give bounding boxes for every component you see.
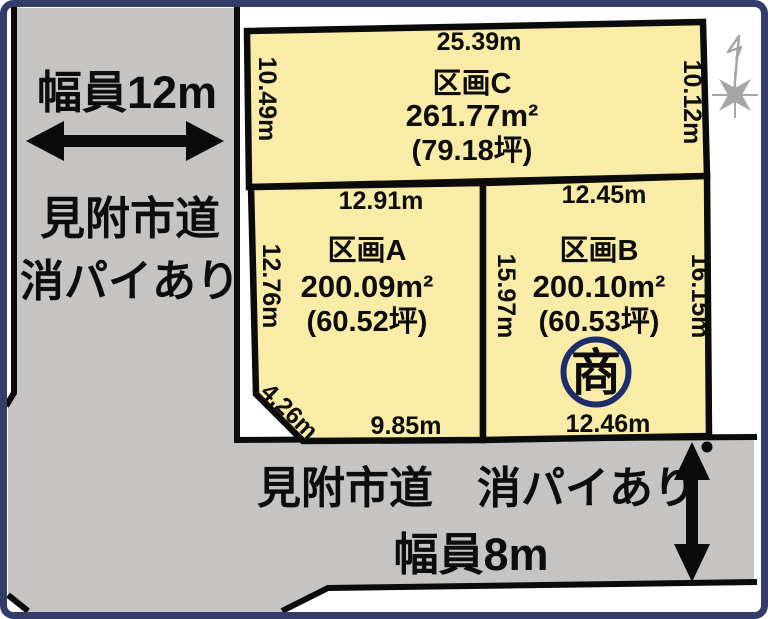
- plot-map-canvas: 25.39m 区画C 261.77m² (79.18坪) 10.49m 10.1…: [0, 0, 768, 619]
- bottom-road-label: 見附市道 消パイあり: [257, 464, 697, 513]
- sho-seal-icon: 商: [564, 340, 629, 405]
- parcel-b-tsubo: (60.53坪): [539, 305, 660, 338]
- parcel-c-tsubo: (79.18坪): [412, 134, 533, 167]
- parcel-c-dim-left: 10.49m: [253, 57, 281, 142]
- left-road-name: 見附市道: [40, 193, 220, 244]
- land-plot-diagram: 25.39m 区画C 261.77m² (79.18坪) 10.49m 10.1…: [0, 0, 768, 619]
- survey-point-dot: [702, 442, 713, 453]
- parcel-a-area: 200.09m²: [301, 269, 434, 304]
- parcel-a-tsubo: (60.52坪): [307, 305, 428, 338]
- parcel-b-dim-top: 12.45m: [562, 181, 647, 209]
- parcel-a-dim-left: 12.76m: [257, 244, 285, 329]
- parcel-b-dim-right: 16.15m: [686, 254, 714, 339]
- parcel-c-name: 区画C: [433, 68, 512, 100]
- parcel-c-dim-right: 10.12m: [678, 60, 706, 145]
- parcel-b-name: 区画B: [560, 235, 639, 267]
- left-road-width-label: 幅員12m: [37, 67, 217, 118]
- left-road-note: 消パイあり: [20, 257, 240, 306]
- sho-seal-character: 商: [571, 345, 621, 401]
- parcel-a-name: 区画A: [328, 235, 407, 267]
- parcel-a-dim-top: 12.91m: [339, 187, 424, 215]
- parcel-a-dim-bottom: 9.85m: [371, 412, 442, 440]
- parcel-a-dim-right: 15.97m: [492, 254, 520, 339]
- parcel-b-dim-bottom: 12.46m: [566, 410, 651, 438]
- bottom-road-width-label: 幅員8m: [393, 529, 548, 580]
- parcel-b-area: 200.10m²: [533, 269, 666, 304]
- parcel-c-area: 261.77m²: [406, 98, 539, 133]
- parcel-c-dim-top: 25.39m: [437, 28, 522, 56]
